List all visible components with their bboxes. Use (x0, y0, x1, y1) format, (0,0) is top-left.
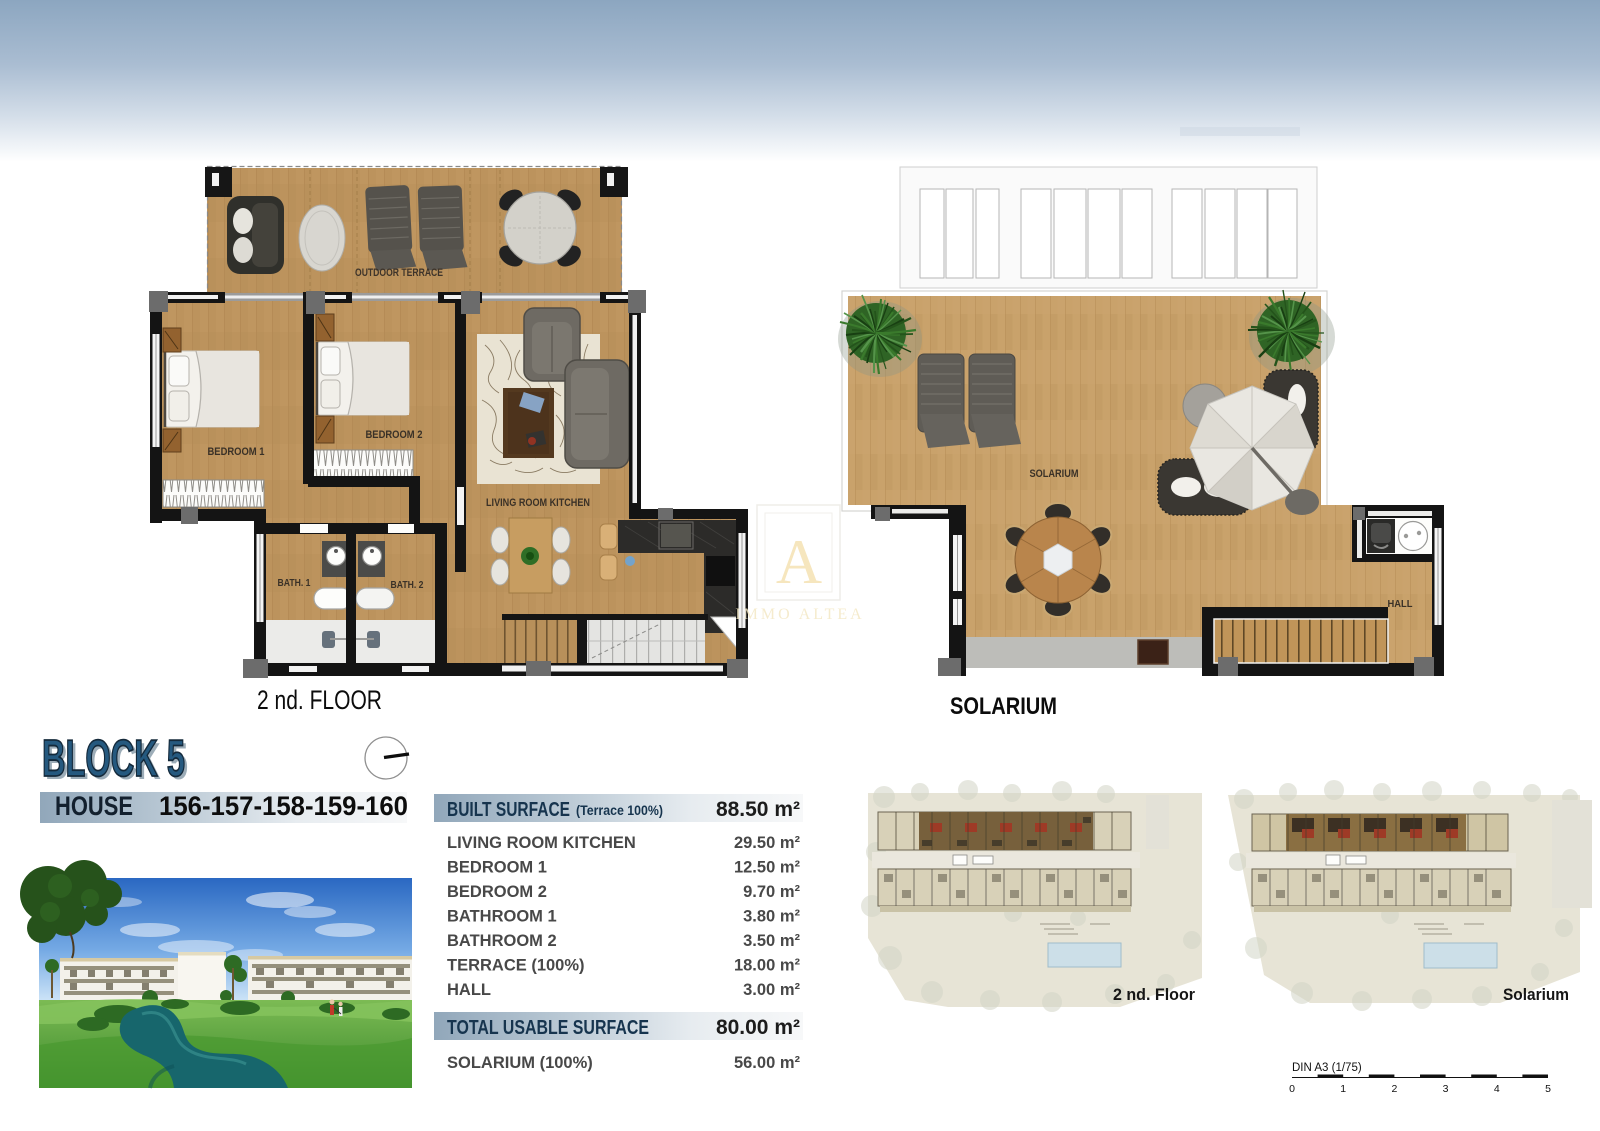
svg-text:80.00 m²: 80.00 m² (716, 1016, 800, 1039)
svg-text:SOLARIUM: SOLARIUM (950, 693, 1057, 720)
svg-text:56.00 m²: 56.00 m² (734, 1054, 801, 1072)
svg-text:1: 1 (1340, 1083, 1346, 1095)
svg-text:BEDROOM 1: BEDROOM 1 (208, 446, 265, 458)
svg-text:3.80 m²: 3.80 m² (743, 908, 800, 926)
svg-text:A: A (776, 526, 822, 597)
svg-text:LIVING ROOM KITCHEN: LIVING ROOM KITCHEN (447, 834, 636, 852)
svg-text:4: 4 (1494, 1083, 1500, 1095)
svg-text:BATHROOM 2: BATHROOM 2 (447, 932, 557, 950)
svg-text:0: 0 (1289, 1083, 1295, 1095)
svg-text:(Terrace 100%): (Terrace 100%) (576, 803, 663, 818)
svg-text:88.50 m²: 88.50 m² (716, 798, 800, 821)
svg-text:OUTDOOR TERRACE: OUTDOOR TERRACE (355, 267, 443, 279)
svg-text:BEDROOM 2: BEDROOM 2 (366, 429, 423, 441)
svg-text:TERRACE (100%): TERRACE (100%) (447, 957, 585, 975)
svg-text:SOLARIUM: SOLARIUM (1030, 468, 1079, 480)
svg-text:2: 2 (1391, 1083, 1397, 1095)
svg-text:DIN A3 (1/75): DIN A3 (1/75) (1292, 1062, 1362, 1074)
svg-text:BUILT SURFACE: BUILT SURFACE (447, 799, 570, 821)
svg-text:LIVING ROOM KITCHEN: LIVING ROOM KITCHEN (486, 497, 590, 509)
svg-text:BEDROOM 1: BEDROOM 1 (447, 859, 547, 877)
svg-text:9.70 m²: 9.70 m² (743, 883, 800, 901)
svg-text:HOUSE: HOUSE (55, 791, 133, 821)
svg-text:12.50 m²: 12.50 m² (734, 859, 801, 877)
svg-text:3: 3 (1443, 1083, 1449, 1095)
svg-text:HALL: HALL (1388, 598, 1414, 610)
svg-text:2 nd. Floor: 2 nd. Floor (1113, 985, 1195, 1004)
svg-text:3.50 m²: 3.50 m² (743, 932, 800, 950)
svg-text:BATHROOM 1: BATHROOM 1 (447, 908, 557, 926)
svg-text:TOTAL USABLE SURFACE: TOTAL USABLE SURFACE (447, 1017, 649, 1039)
svg-text:BEDROOM 2: BEDROOM 2 (447, 883, 547, 901)
svg-text:156-157-158-159-160: 156-157-158-159-160 (159, 791, 408, 821)
svg-text:IMMO ALTEA: IMMO ALTEA (735, 606, 864, 623)
svg-text:3.00 m²: 3.00 m² (743, 981, 800, 999)
svg-text:HALL: HALL (447, 981, 491, 999)
svg-text:BLOCK 5: BLOCK 5 (42, 730, 185, 788)
svg-text:29.50 m²: 29.50 m² (734, 834, 801, 852)
svg-text:5: 5 (1545, 1083, 1551, 1095)
svg-text:18.00 m²: 18.00 m² (734, 957, 801, 975)
svg-text:BATH. 1: BATH. 1 (278, 578, 311, 589)
svg-text:Solarium: Solarium (1503, 985, 1569, 1004)
svg-text:BATH. 2: BATH. 2 (391, 580, 424, 591)
svg-text:2 nd. FLOOR: 2 nd. FLOOR (257, 685, 382, 715)
svg-text:SOLARIUM (100%): SOLARIUM (100%) (447, 1054, 593, 1072)
